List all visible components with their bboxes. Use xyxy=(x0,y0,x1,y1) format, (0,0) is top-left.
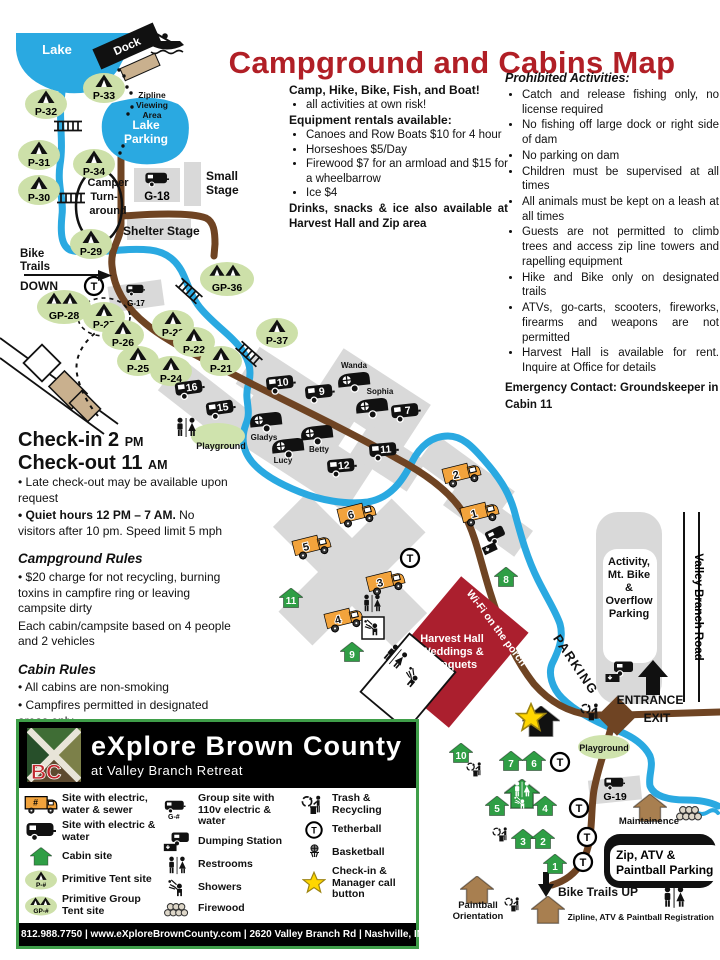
tetherball-icon: T xyxy=(401,549,419,567)
bike-trails-down-label-3: DOWN xyxy=(20,279,58,293)
paintball-orientation-label-1: Paintball xyxy=(458,900,498,911)
svg-text:T: T xyxy=(584,832,591,844)
svg-text:12: 12 xyxy=(337,459,350,472)
site-p24: P-24 xyxy=(150,356,192,386)
tetherball-icon: T xyxy=(578,828,596,846)
activity-parking-label-5: Parking xyxy=(609,608,649,620)
rv-site-icon: # xyxy=(24,794,58,815)
quiet-hours-note: • Quiet hours 12 PM – 7 AM. No visitors … xyxy=(18,508,235,539)
svg-text:Lucy: Lucy xyxy=(274,456,293,465)
firewood-icon xyxy=(677,807,702,820)
svg-text:P-32: P-32 xyxy=(35,106,57,118)
legend-item: Showers xyxy=(160,879,298,898)
legend-item: Firewood xyxy=(160,902,298,917)
playground-label-right: Playground xyxy=(579,743,629,753)
prohibited-item: No fishing off large dock or right side … xyxy=(522,118,719,147)
svg-text:P-33: P-33 xyxy=(93,90,115,102)
valley-branch-road-label: Valley Branch Road xyxy=(692,553,704,660)
campground-rule: • $20 charge for not recycling, burning … xyxy=(18,570,235,617)
bike-trails-down-label-1: Bike xyxy=(20,248,44,260)
prohibited-item: Children must be supervised at all times xyxy=(522,165,719,194)
maintenance-label: Maintainence xyxy=(619,816,679,827)
cabin-4: 4 xyxy=(533,796,557,816)
legend-item: G-# Group site with 110v electric & wate… xyxy=(160,793,298,828)
svg-text:P-#: P-# xyxy=(36,882,47,889)
site-p37: P-37 xyxy=(256,318,298,348)
svg-text:GP-28: GP-28 xyxy=(49,310,80,322)
svg-text:P-31: P-31 xyxy=(28,157,50,169)
svg-text:Betty: Betty xyxy=(309,445,330,454)
brand-logo-icon: BC xyxy=(27,728,81,782)
legend-item: # Site with electric, water & sewer xyxy=(24,793,158,816)
basketball-icon xyxy=(308,844,321,862)
tetherball-icon: T xyxy=(574,853,592,871)
legend-header: BC eXplore Brown County at Valley Branch… xyxy=(19,722,416,788)
prohibited-item: Guests are not permitted to climb trees … xyxy=(522,225,719,269)
svg-text:#: # xyxy=(33,797,38,807)
drinks-note: Drinks, snacks & ice also available at H… xyxy=(289,202,508,231)
svg-text:4: 4 xyxy=(542,804,548,815)
paintball-orientation-label-2: Orientation xyxy=(453,911,504,922)
entrance-label: ENTRANCE xyxy=(617,693,684,707)
svg-text:2: 2 xyxy=(540,837,546,848)
svg-text:9: 9 xyxy=(349,650,355,661)
prohibited-item: Catch and release fishing only, no licen… xyxy=(522,88,719,117)
office-checkin xyxy=(517,704,560,737)
zip-atv-label-2: Paintball Parking xyxy=(616,863,713,877)
site-p34: P-34 xyxy=(73,149,115,179)
prohibited-item: All animals must be kept on a leash at a… xyxy=(522,195,719,224)
checkout-heading: Check-out 11 AM xyxy=(18,452,235,475)
svg-text:T: T xyxy=(580,857,587,869)
lake-parking-label-2: Parking xyxy=(124,132,168,146)
site-gp28: GP-28 xyxy=(37,290,91,324)
activity-parking-label-4: Overflow xyxy=(605,595,653,607)
brand-subtitle: at Valley Branch Retreat xyxy=(91,763,402,778)
svg-text:G-17: G-17 xyxy=(127,299,145,308)
svg-text:P-37: P-37 xyxy=(266,335,288,347)
svg-text:T: T xyxy=(311,826,317,836)
info-block: Camp, Hike, Bike, Fish, and Boat! all ac… xyxy=(289,83,508,231)
bike-trails-down-label-2: Trails xyxy=(20,261,50,273)
zipline-viewing-label-1: Zipline xyxy=(138,90,166,100)
shower-icon xyxy=(168,879,187,898)
emergency-contact: Emergency Contact: Groundskeeper in Cabi… xyxy=(505,380,719,415)
checkout-time: Check-out 11 xyxy=(18,452,142,474)
exit-label: EXIT xyxy=(644,711,671,725)
cabin-rule: • All cabins are non-smoking xyxy=(18,680,235,696)
registration-building xyxy=(531,896,565,923)
shelter-stage-label: Shelter Stage xyxy=(123,224,200,238)
svg-text:GP-#: GP-# xyxy=(33,908,49,915)
svg-text:8: 8 xyxy=(503,575,509,586)
svg-text:Wanda: Wanda xyxy=(341,361,367,370)
campground-rules-heading: Campground Rules xyxy=(18,550,235,568)
prohibited-item: No parking on dam xyxy=(522,149,719,164)
turnaround-label-3: around xyxy=(89,205,126,217)
legend-body: # Site with electric, water & sewer Site… xyxy=(19,788,416,923)
svg-text:10: 10 xyxy=(455,751,467,762)
zip-atv-label-1: Zip, ATV & xyxy=(616,848,676,862)
brand-name: eXplore Brown County xyxy=(91,733,402,760)
svg-text:10: 10 xyxy=(276,376,289,389)
checkout-ampm: AM xyxy=(148,458,167,472)
prohibited-item: Hike and Bike only on designated trails xyxy=(522,271,719,300)
group-site-icon: G-# xyxy=(164,800,190,820)
rentals-heading: Equipment rentals available: xyxy=(289,113,508,128)
svg-text:GP-36: GP-36 xyxy=(212,282,243,294)
trash-recycling-icon xyxy=(493,827,507,841)
campground-rule: Each cabin/campsite based on 4 people an… xyxy=(18,619,235,650)
trash-recycling-icon xyxy=(301,795,327,815)
cabin-2: 2 xyxy=(531,829,555,849)
info-bullet: all activities at own risk! xyxy=(306,98,508,113)
restroom-icon xyxy=(665,887,685,908)
prohibited-item: Harvest Hall is available for rent. Inqu… xyxy=(522,346,719,375)
legend-item: Trash & Recycling xyxy=(300,793,413,816)
lake-label: Lake xyxy=(42,42,72,57)
zipline-viewing-label-3: Area xyxy=(143,110,162,120)
tetherball-icon: T xyxy=(551,753,569,771)
site-p30: P-30 xyxy=(18,175,60,205)
svg-text:G-#: G-# xyxy=(168,814,180,820)
turnaround-label-2: Turn- xyxy=(90,191,118,203)
cabin-1: 1 xyxy=(543,854,567,874)
svg-text:P-22: P-22 xyxy=(183,344,205,356)
turnaround-label-1: Camper xyxy=(88,177,130,189)
svg-text:P-21: P-21 xyxy=(210,363,232,375)
zip-atv-parking-sign: Zip, ATV & Paintball Parking xyxy=(604,834,720,888)
cabin-rules-heading: Cabin Rules xyxy=(18,661,235,679)
activity-parking-label-2: Mt. Bike xyxy=(608,569,650,581)
site-p33: P-33 xyxy=(83,73,125,103)
lake-parking-label-1: Lake xyxy=(132,118,160,132)
prohibited-block: Prohibited Activities: Catch and release… xyxy=(505,70,719,414)
activity-parking-label-3: & xyxy=(625,582,633,594)
legend-item: Dumping Station xyxy=(160,832,298,852)
zipline-towers xyxy=(0,338,118,434)
valley-branch-road: Valley Branch Road xyxy=(684,512,704,702)
trailer-site-icon xyxy=(26,822,56,842)
harvest-hall-label-1: Harvest Hall xyxy=(420,633,484,645)
harvest-hall-label-3: Banquets xyxy=(427,659,477,671)
rental-item: Firewood $7 for an armload and $15 for a… xyxy=(306,157,508,186)
dump-station-icon xyxy=(163,832,191,852)
svg-text:6: 6 xyxy=(531,759,537,770)
tetherball-icon: T xyxy=(570,799,588,817)
legend-item: T Tetherball xyxy=(300,820,413,840)
svg-text:7: 7 xyxy=(508,759,514,770)
late-checkout-note: • Late check-out may be available upon r… xyxy=(18,475,235,506)
cabin-6: 6 xyxy=(522,751,546,771)
svg-text:T: T xyxy=(91,281,98,293)
svg-text:G-18: G-18 xyxy=(144,191,170,203)
checkin-heading: Check-in 2 PM xyxy=(18,429,235,452)
group-tent-site-icon: GP-# xyxy=(24,896,58,916)
site-gp36: GP-36 xyxy=(200,262,254,296)
brand-logo-bc: BC xyxy=(31,761,62,782)
cabin-site-icon xyxy=(30,847,52,866)
legend-item: P-# Primitive Tent site xyxy=(24,870,158,890)
svg-text:Gladys: Gladys xyxy=(251,433,278,442)
trash-recycling-icon xyxy=(467,762,481,776)
svg-text:11: 11 xyxy=(380,443,392,456)
svg-text:16: 16 xyxy=(185,381,198,395)
checkin-star-icon xyxy=(302,871,326,895)
restroom-icon xyxy=(166,856,188,875)
bike-trails-up-arrow-icon xyxy=(538,872,554,897)
site-p32: P-32 xyxy=(25,89,67,119)
svg-text:G-19: G-19 xyxy=(603,791,627,803)
rental-item: Horseshoes $5/Day xyxy=(306,143,508,158)
rules-block: Check-in 2 PM Check-out 11 AM • Late che… xyxy=(18,429,235,749)
trash-recycling-icon xyxy=(505,897,519,911)
site-p31: P-31 xyxy=(18,140,60,170)
tetherball-icon: T xyxy=(304,820,324,840)
svg-text:T: T xyxy=(557,757,564,769)
bike-trails-up-label: Bike Trails UP xyxy=(558,885,638,899)
quiet-hours-bold: • Quiet hours 12 PM – 7 AM. xyxy=(18,508,176,522)
checkin-ampm: PM xyxy=(125,435,144,449)
contact-footer: 812.988.7750 | www.eXploreBrownCounty.co… xyxy=(19,923,416,946)
svg-text:P-30: P-30 xyxy=(28,192,50,204)
cabin-9: 9 xyxy=(340,642,364,662)
site-p29: P-29 xyxy=(70,229,112,259)
svg-text:1: 1 xyxy=(552,862,558,873)
svg-text:5: 5 xyxy=(494,804,500,815)
site-p26: P-26 xyxy=(102,320,144,350)
cabin-8: 8 xyxy=(494,567,518,587)
info-heading: Camp, Hike, Bike, Fish, and Boat! xyxy=(289,83,508,98)
legend-item: GP-# Primitive Group Tent site xyxy=(24,894,158,917)
rental-item: Canoes and Row Boats $10 for 4 hour xyxy=(306,128,508,143)
legend-item: Cabin site xyxy=(24,847,158,866)
cabin-10: 10 xyxy=(449,743,473,763)
zipline-viewing-label-2: Viewing xyxy=(136,100,168,110)
cabin-5: 5 xyxy=(485,796,509,816)
svg-text:11: 11 xyxy=(286,596,297,607)
legend-item: Check-in & Manager call button xyxy=(300,866,413,901)
svg-text:15: 15 xyxy=(216,401,229,415)
small-stage-label-2: Stage xyxy=(206,183,239,197)
svg-text:P-29: P-29 xyxy=(80,246,102,258)
svg-text:T: T xyxy=(576,803,583,815)
registration-label: Zipline, ATV & Paintball Registration xyxy=(568,912,714,922)
svg-text:Sophia: Sophia xyxy=(367,387,394,396)
tent-site-icon: P-# xyxy=(24,870,58,890)
prohibited-item: ATVs, go-carts, scooters, fireworks, fir… xyxy=(522,301,719,345)
legend-item: Site with electric & water xyxy=(24,820,158,843)
legend-item: Basketball xyxy=(300,844,413,862)
rental-item: Ice $4 xyxy=(306,186,508,201)
svg-text:T: T xyxy=(407,553,414,565)
harvest-hall-label-2: Weddings & xyxy=(420,646,483,658)
svg-text:3: 3 xyxy=(520,837,526,848)
legend: BC eXplore Brown County at Valley Branch… xyxy=(16,719,419,949)
firewood-icon xyxy=(164,902,190,917)
cabin-7: 7 xyxy=(499,751,523,771)
svg-text:P-25: P-25 xyxy=(127,363,149,375)
prohibited-heading: Prohibited Activities: xyxy=(505,70,719,86)
site-p21: P-21 xyxy=(200,346,242,376)
small-stage-label-1: Small xyxy=(206,169,238,183)
checkin-time: Check-in 2 xyxy=(18,429,119,451)
legend-item: Restrooms xyxy=(160,856,298,875)
activity-parking-label-1: Activity, xyxy=(608,556,650,568)
